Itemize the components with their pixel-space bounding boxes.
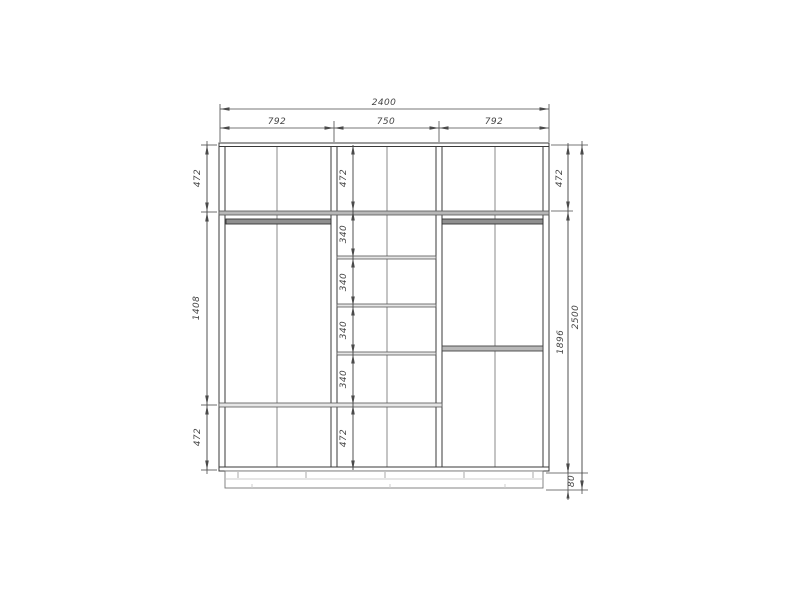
dim-label-right-1: 1896 bbox=[556, 330, 566, 355]
middle-shelf-1 bbox=[337, 256, 436, 259]
dim-label-middle-0: 472 bbox=[339, 169, 349, 187]
cabinet-body bbox=[219, 143, 549, 488]
dim-label-middle-3: 340 bbox=[339, 321, 349, 339]
dim-label-top-segment-0: 792 bbox=[268, 117, 286, 127]
middle-shelf-2 bbox=[337, 304, 436, 307]
wardrobe-dimension-drawing: 2400 792 750 792 472 1408 472 472 340 34… bbox=[0, 0, 800, 600]
dimension-lines bbox=[201, 104, 588, 500]
dim-label-left-2: 472 bbox=[193, 428, 203, 446]
plinth-base bbox=[225, 471, 543, 488]
top-panel bbox=[219, 143, 549, 147]
dim-label-middle-5: 472 bbox=[339, 429, 349, 447]
partition-panel-1 bbox=[331, 143, 337, 471]
dim-label-middle-4: 340 bbox=[339, 370, 349, 388]
left-side-panel bbox=[219, 143, 225, 471]
dim-label-left-1: 1408 bbox=[192, 296, 202, 321]
upper-shelf bbox=[219, 211, 549, 215]
right-section-shelf bbox=[442, 346, 543, 351]
middle-shelf-3 bbox=[337, 352, 436, 355]
dim-label-total-width: 2400 bbox=[372, 98, 397, 108]
left-dimension-column bbox=[201, 141, 217, 474]
dim-label-top-segment-1: 750 bbox=[377, 117, 395, 127]
bottom-panel bbox=[219, 467, 549, 471]
plinth-dim-arrow-top bbox=[567, 465, 570, 474]
plinth-front bbox=[225, 471, 543, 488]
wardrobe-drawing-canvas: 2400 792 750 792 472 1408 472 472 340 34… bbox=[0, 0, 800, 600]
hanging-rod-right bbox=[442, 219, 543, 224]
right-dimension-columns bbox=[546, 141, 588, 500]
left-middle-shelf bbox=[219, 403, 442, 407]
plinth-dim-arrow-bottom bbox=[567, 490, 570, 499]
dim-label-middle-1: 340 bbox=[339, 225, 349, 243]
dim-label-right-0: 472 bbox=[555, 169, 565, 187]
right-side-panel bbox=[543, 143, 549, 471]
dim-label-middle-2: 340 bbox=[339, 273, 349, 291]
partition-panel-2 bbox=[436, 143, 442, 471]
dim-label-top-segment-2: 792 bbox=[485, 117, 503, 127]
dim-label-total-height: 2500 bbox=[571, 305, 581, 330]
dim-label-plinth-height: 80 bbox=[567, 475, 577, 487]
dim-label-left-0: 472 bbox=[193, 169, 203, 187]
hanging-rod-left bbox=[226, 219, 331, 224]
